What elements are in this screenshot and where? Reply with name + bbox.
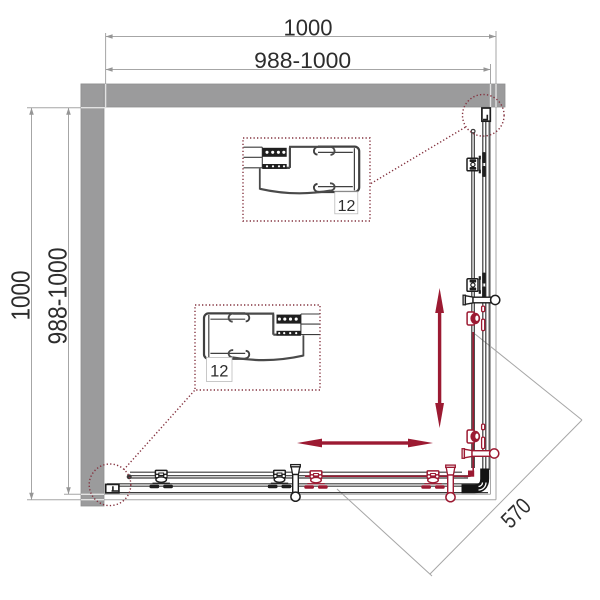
svg-text:12: 12: [210, 363, 228, 381]
svg-text:1000: 1000: [284, 15, 333, 41]
svg-text:988-1000: 988-1000: [254, 48, 351, 73]
svg-text:1000: 1000: [6, 271, 36, 321]
svg-text:988-1000: 988-1000: [43, 248, 73, 345]
svg-text:12: 12: [338, 198, 356, 215]
